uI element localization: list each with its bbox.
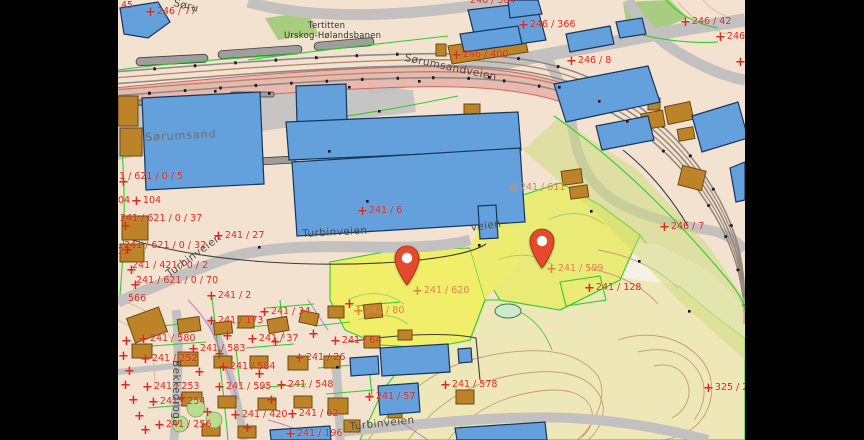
map-graphics bbox=[118, 0, 745, 440]
letterbox-left bbox=[0, 0, 118, 440]
location-pin-icon[interactable] bbox=[528, 228, 556, 268]
map-viewport[interactable]: SøruSørumsandTertittenUrskog-Hølandsbane… bbox=[118, 0, 745, 440]
pond-icon bbox=[495, 304, 521, 318]
location-pin-icon[interactable] bbox=[393, 245, 421, 285]
screen: SøruSørumsandTertittenUrskog-Hølandsbane… bbox=[0, 0, 864, 440]
letterbox-right bbox=[745, 0, 864, 440]
